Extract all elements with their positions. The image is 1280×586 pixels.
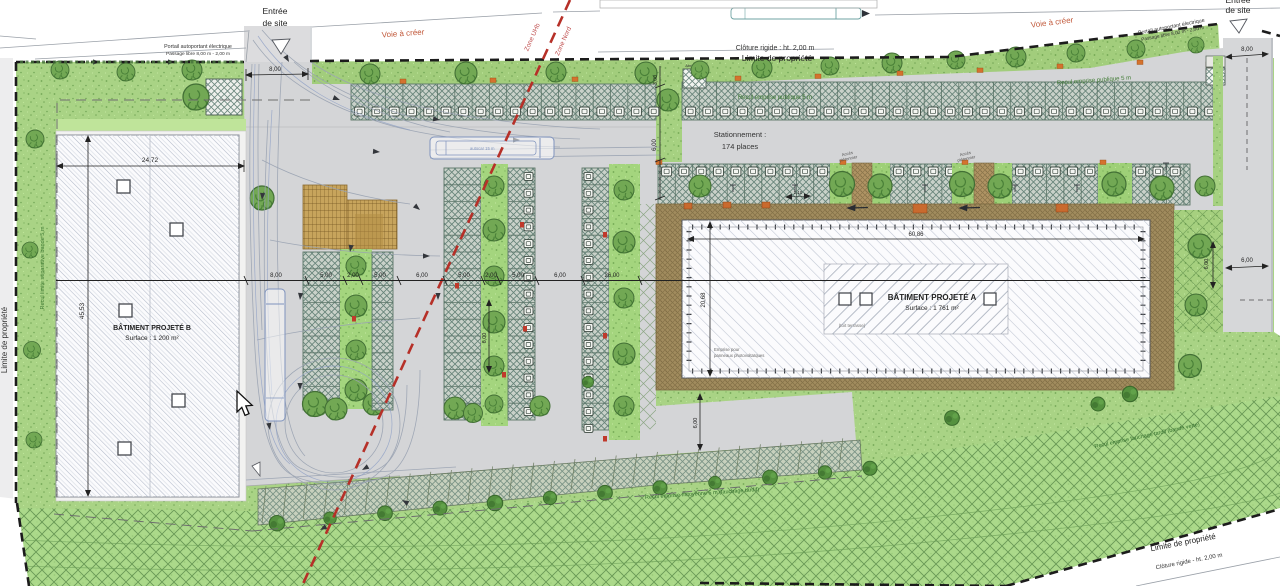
svg-text:60,86: 60,86 (908, 232, 924, 238)
svg-text:2,00: 2,00 (485, 273, 497, 279)
svg-text:BÂTIMENT PROJETÉ B: BÂTIMENT PROJETÉ B (113, 323, 191, 332)
svg-text:20,68: 20,68 (701, 292, 707, 308)
svg-text:Emprise pour: Emprise pour (714, 347, 740, 352)
svg-text:Entrée: Entrée (262, 6, 287, 16)
svg-text:5,00: 5,00 (512, 273, 524, 279)
svg-text:8,00: 8,00 (270, 273, 282, 279)
svg-text:6,00: 6,00 (652, 139, 658, 151)
svg-text:2,00: 2,00 (347, 273, 359, 279)
svg-text:45,53: 45,53 (79, 302, 86, 319)
svg-text:de site: de site (262, 18, 287, 28)
svg-text:6,00: 6,00 (693, 418, 699, 429)
svg-text:autocar 15 m: autocar 15 m (470, 146, 495, 151)
svg-text:Limite de propriété: Limite de propriété (742, 53, 813, 63)
svg-text:24,72: 24,72 (142, 157, 159, 164)
svg-text:1,10: 1,10 (794, 190, 803, 195)
svg-text:26,00: 26,00 (604, 273, 620, 279)
svg-text:Limite de propriété: Limite de propriété (0, 306, 9, 373)
svg-text:5,00: 5,00 (374, 273, 386, 279)
svg-text:8,00: 8,00 (1241, 47, 1253, 53)
svg-text:174 places: 174 places (722, 142, 759, 151)
svg-text:Passage libre 8,00 m - 2,00 m: Passage libre 8,00 m - 2,00 m (166, 51, 230, 57)
svg-text:Portail autoportant électrique: Portail autoportant électrique (164, 44, 232, 50)
svg-text:6,00: 6,00 (554, 273, 566, 279)
svg-text:5,00: 5,00 (458, 273, 470, 279)
svg-text:Surface : 1 200 m²: Surface : 1 200 m² (125, 335, 179, 342)
svg-text:Stationnement :: Stationnement : (714, 130, 767, 139)
svg-text:5,00: 5,00 (320, 273, 332, 279)
svg-text:(toit terrasse): (toit terrasse) (839, 323, 866, 328)
svg-text:Recul limite séparative bande: Recul limite séparative bande 5 m (40, 226, 46, 309)
svg-text:6,00: 6,00 (416, 273, 428, 279)
svg-text:Clôture rigide : ht. 2,00 m: Clôture rigide : ht. 2,00 m (736, 45, 815, 52)
svg-text:panneaux photovoltaïques: panneaux photovoltaïques (714, 353, 764, 358)
svg-text:6,00: 6,00 (482, 333, 488, 344)
svg-text:BÂTIMENT PROJETÉ A: BÂTIMENT PROJETÉ A (888, 293, 977, 302)
svg-text:de site: de site (1225, 5, 1250, 15)
svg-text:Recul emprise publique 5 m: Recul emprise publique 5 m (738, 95, 812, 101)
svg-text:3,00: 3,00 (653, 75, 659, 85)
svg-text:8,00: 8,00 (269, 67, 281, 73)
svg-text:6,00: 6,00 (1241, 258, 1253, 264)
svg-text:Surface : 1 761 m²: Surface : 1 761 m² (905, 305, 959, 312)
svg-text:6,00: 6,00 (1204, 259, 1210, 270)
